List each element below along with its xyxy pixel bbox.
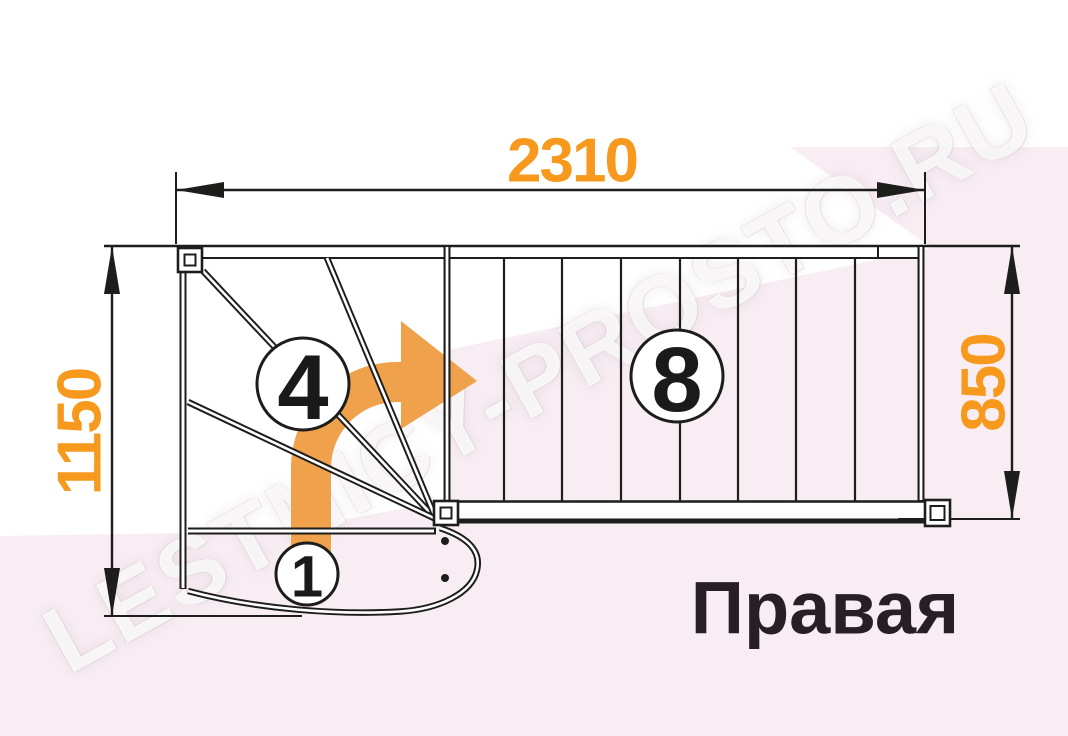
- arrowhead-right: [877, 182, 925, 198]
- winder-step-count-label: 4: [277, 337, 328, 439]
- dimension-flight-width: 850: [898, 246, 1020, 519]
- bottom-stringer-fill: [436, 503, 948, 519]
- arrowhead-top: [1004, 246, 1020, 294]
- starting-step-label: 1: [291, 545, 323, 610]
- arrowhead-bottom: [104, 568, 120, 616]
- arrowhead-left: [176, 182, 224, 198]
- dimension-flight-width-label: 850: [950, 334, 1019, 431]
- arrowhead-top: [104, 246, 120, 294]
- newel-post-winder-core: [441, 508, 452, 519]
- baluster-dot-lower: [441, 574, 449, 582]
- arrowhead-bottom: [1004, 471, 1020, 519]
- staircase-plan-drawing: 2310 1150 850: [0, 0, 1068, 736]
- staircase-linework: [104, 246, 1020, 613]
- flight-step-count-label: 8: [651, 329, 702, 431]
- newel-post-bottom-right-core: [931, 506, 945, 520]
- dimension-total-run-label: 2310: [507, 127, 637, 196]
- dimension-total-width-label: 1150: [46, 369, 115, 496]
- handrail-band-fill: [178, 248, 921, 258]
- staircase-plan-page: LESTNICY-PROSTO.RU: [0, 0, 1068, 736]
- direction-label: Правая: [691, 567, 959, 650]
- baluster-dot-upper: [441, 537, 449, 545]
- dimension-total-width: 1150: [46, 246, 303, 616]
- dimension-total-run: 2310: [176, 127, 925, 245]
- newel-post-top-left-core: [185, 255, 196, 266]
